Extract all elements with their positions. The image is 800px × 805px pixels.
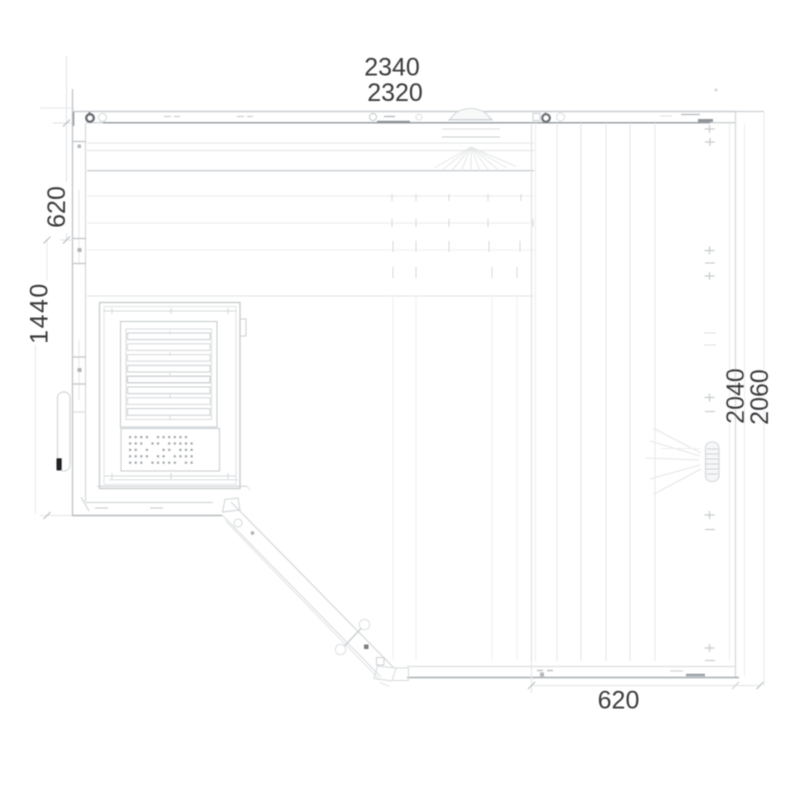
svg-text:2060: 2060 (746, 369, 774, 425)
svg-text:620: 620 (598, 687, 640, 715)
svg-text:2320: 2320 (367, 79, 423, 107)
svg-text:1440: 1440 (26, 282, 54, 344)
svg-text:2340: 2340 (364, 54, 420, 82)
svg-text:620: 620 (43, 186, 71, 228)
